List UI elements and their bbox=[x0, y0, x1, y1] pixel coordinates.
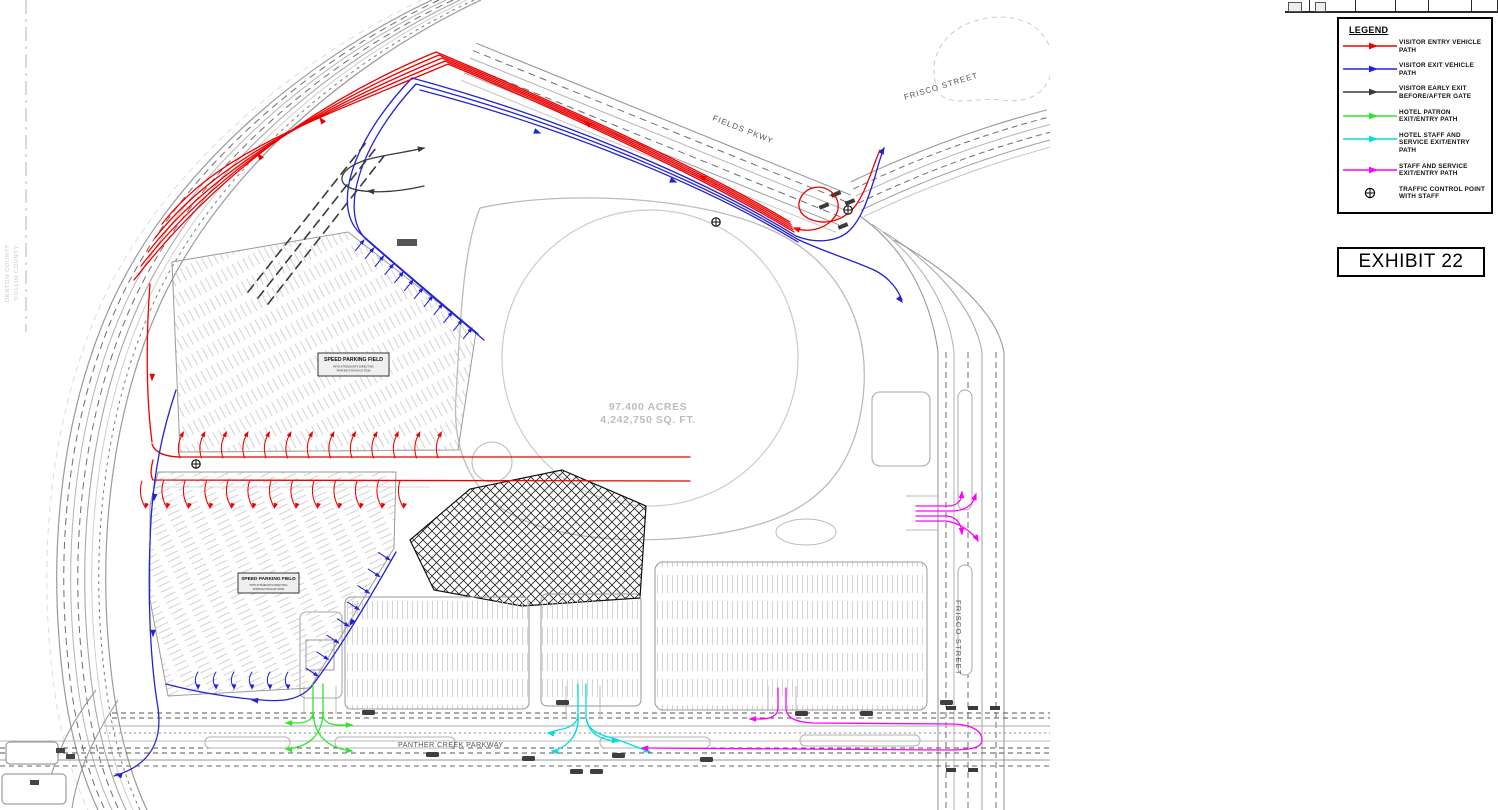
svg-text:SPEED PARKING FIELD: SPEED PARKING FIELD bbox=[241, 576, 296, 582]
svg-text:PARKING FOR EACH ROW: PARKING FOR EACH ROW bbox=[337, 369, 371, 373]
gate-booth bbox=[397, 239, 417, 246]
site-plan-canvas: DENTON COUNTY COLLIN COUNTY bbox=[0, 0, 1050, 810]
visitor-entry-path bbox=[794, 150, 880, 230]
road-label-panther-creek: PANTHER CREEK PARKWAY bbox=[398, 740, 504, 749]
road-label-frisco-south: FRISCO STREET bbox=[954, 600, 963, 676]
legend-item-visitor-exit: VISITOR EXIT VEHICLE PATH bbox=[1341, 62, 1487, 77]
title-block-divider bbox=[1355, 0, 1356, 11]
building-pad bbox=[872, 392, 930, 466]
title-block-divider bbox=[1309, 0, 1310, 11]
title-block-glyph bbox=[1315, 2, 1326, 12]
hotel-staff-arrow-icon bbox=[1341, 133, 1399, 145]
early-exit-arrow-icon bbox=[1341, 86, 1399, 98]
roundabout bbox=[472, 442, 512, 482]
speed-parking-field-label-lower: SPEED PARKING FIELD WITH ATTENDANTS DIRE… bbox=[238, 573, 299, 593]
title-block-divider bbox=[1395, 0, 1396, 11]
title-block-glyph bbox=[1288, 2, 1302, 12]
legend-item-label: HOTEL STAFF AND SERVICE EXIT/ENTRY PATH bbox=[1399, 132, 1487, 155]
svg-text:SPEED PARKING FIELD: SPEED PARKING FIELD bbox=[324, 357, 383, 363]
legend-item-label: STAFF AND SERVICE EXIT/ENTRY PATH bbox=[1399, 163, 1487, 178]
legend-item-traffic-control: TRAFFIC CONTROL POINT WITH STAFF bbox=[1341, 186, 1487, 201]
speed-parking-field-label-upper: SPEED PARKING FIELD WITH ATTENDANTS DIRE… bbox=[318, 353, 389, 376]
exit-arrow-icon bbox=[1341, 63, 1399, 75]
traffic-control-point-icon bbox=[1341, 187, 1399, 199]
legend-item-early-exit: VISITOR EARLY EXIT BEFORE/AFTER GATE bbox=[1341, 85, 1487, 100]
legend-item-label: VISITOR EXIT VEHICLE PATH bbox=[1399, 62, 1487, 77]
upper-speed-parking-field bbox=[172, 232, 476, 452]
legend-item-hotel-staff: HOTEL STAFF AND SERVICE EXIT/ENTRY PATH bbox=[1341, 132, 1487, 155]
legend-item-staff-service: STAFF AND SERVICE EXIT/ENTRY PATH bbox=[1341, 163, 1487, 178]
parcel-boundary-dashed bbox=[934, 17, 1050, 101]
title-block-strip bbox=[1285, 0, 1498, 13]
island bbox=[776, 519, 836, 545]
staff-service-arrow-icon bbox=[1341, 164, 1399, 176]
visitor-exit-path bbox=[797, 239, 902, 300]
staff-service-path bbox=[916, 516, 962, 534]
legend: LEGEND VISITOR ENTRY VEHICLE PATH VISITO… bbox=[1337, 17, 1493, 214]
hotel-staff-service-path bbox=[552, 714, 578, 751]
road-label-frisco-north: FRISCO STREET bbox=[903, 71, 979, 102]
exhibit-number-box: EXHIBIT 22 bbox=[1337, 247, 1485, 277]
legend-title: LEGEND bbox=[1349, 25, 1491, 35]
exhibit-sheet: LEGEND VISITOR ENTRY VEHICLE PATH VISITO… bbox=[0, 0, 1498, 810]
legend-item-label: HOTEL PATRON EXIT/ENTRY PATH bbox=[1399, 109, 1487, 124]
legend-item-visitor-entry: VISITOR ENTRY VEHICLE PATH bbox=[1341, 39, 1487, 54]
county-line: DENTON COUNTY COLLIN COUNTY bbox=[5, 0, 26, 332]
county-label-west: DENTON COUNTY bbox=[5, 244, 11, 302]
legend-item-label: TRAFFIC CONTROL POINT WITH STAFF bbox=[1399, 186, 1487, 201]
staff-service-path bbox=[916, 492, 962, 506]
event-structure-crosshatch bbox=[410, 470, 646, 606]
exhibit-number-label: EXHIBIT 22 bbox=[1359, 251, 1464, 273]
legend-item-label: VISITOR EARLY EXIT BEFORE/AFTER GATE bbox=[1399, 85, 1487, 100]
early-exit-path bbox=[342, 148, 424, 192]
hotel-patron-arrow-icon bbox=[1341, 110, 1399, 122]
svg-text:PARKING FOR EACH ROW: PARKING FOR EACH ROW bbox=[253, 588, 285, 591]
legend-item-hotel-patron: HOTEL PATRON EXIT/ENTRY PATH bbox=[1341, 109, 1487, 124]
title-block-divider bbox=[1471, 0, 1472, 11]
svg-text:WITH ATTENDANTS DIRECTING: WITH ATTENDANTS DIRECTING bbox=[333, 365, 374, 369]
entry-arrow-icon bbox=[1341, 40, 1399, 52]
road-label-fields-pkwy: FIELDS PKWY bbox=[711, 113, 775, 145]
staff-service-path bbox=[916, 521, 978, 541]
stadium-footprint bbox=[502, 210, 798, 506]
legend-item-label: VISITOR ENTRY VEHICLE PATH bbox=[1399, 39, 1487, 54]
site-area-label: 97.400 ACRES bbox=[609, 401, 688, 413]
site-plan-map: DENTON COUNTY COLLIN COUNTY bbox=[0, 0, 1050, 810]
site-area-label: 4,242,750 SQ. FT. bbox=[600, 414, 695, 426]
svg-text:WITH ATTENDANTS DIRECTING: WITH ATTENDANTS DIRECTING bbox=[250, 584, 288, 587]
visitor-entry-path bbox=[147, 284, 152, 442]
title-block-divider bbox=[1428, 0, 1429, 11]
county-label-east: COLLIN COUNTY bbox=[14, 245, 20, 300]
